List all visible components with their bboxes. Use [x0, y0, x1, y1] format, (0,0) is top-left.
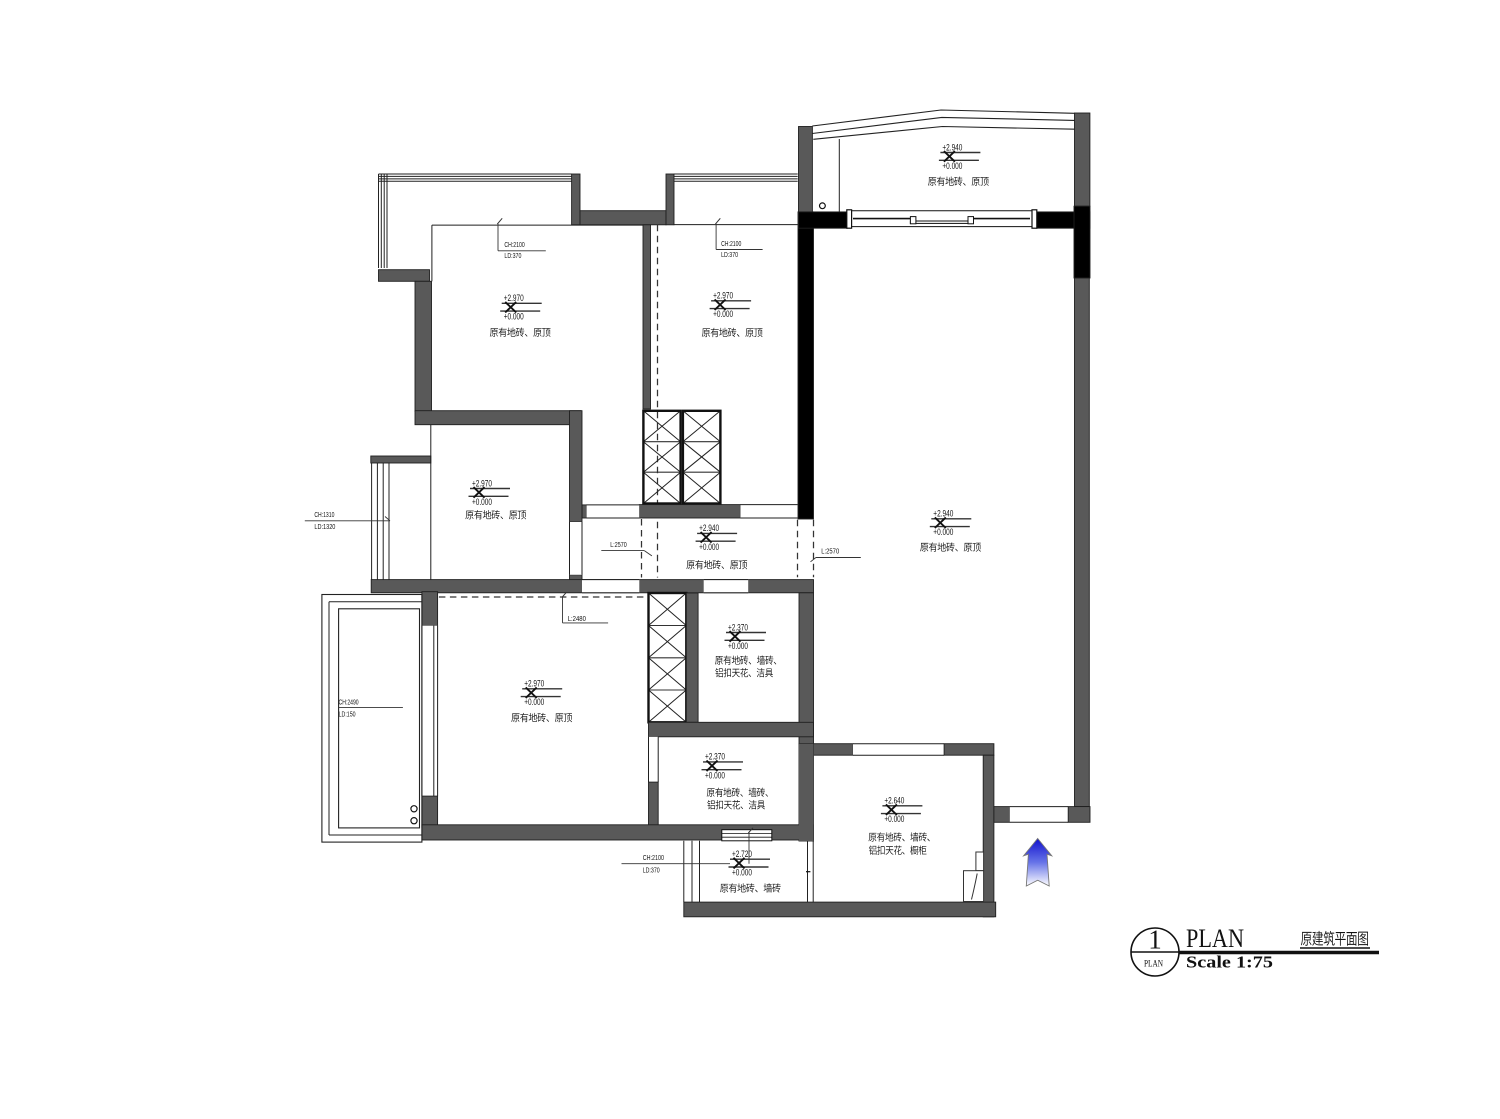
svg-text:CH:2490: CH:2490: [339, 698, 359, 707]
svg-text:L:2570: L:2570: [821, 546, 839, 555]
svg-text:L:2570: L:2570: [610, 540, 626, 549]
svg-text:+2.970: +2.970: [713, 291, 733, 301]
svg-text:+2.370: +2.370: [705, 752, 725, 762]
svg-text:+0.000: +0.000: [942, 161, 962, 171]
svg-text:+2.970: +2.970: [504, 293, 524, 303]
svg-text:+2.970: +2.970: [524, 679, 544, 689]
svg-text:+2.940: +2.940: [699, 523, 719, 533]
svg-text:+2.370: +2.370: [728, 622, 748, 632]
svg-text:Scale 1:75: Scale 1:75: [1186, 953, 1273, 972]
svg-text:+0.000: +0.000: [884, 814, 904, 824]
svg-text:+2.940: +2.940: [933, 509, 953, 519]
svg-text:+0.000: +0.000: [713, 309, 733, 319]
svg-text:CH:2100: CH:2100: [504, 240, 524, 249]
svg-text:+0.000: +0.000: [504, 312, 524, 322]
svg-text:L:2480: L:2480: [568, 614, 586, 623]
svg-text:+0.000: +0.000: [524, 697, 544, 707]
svg-text:LD:1320: LD:1320: [314, 522, 335, 531]
svg-text:1: 1: [1148, 925, 1162, 955]
svg-text:+0.000: +0.000: [732, 868, 752, 878]
svg-text:+0.000: +0.000: [472, 497, 492, 507]
svg-text:LD:370: LD:370: [721, 250, 738, 259]
svg-text:CH:2100: CH:2100: [643, 853, 664, 862]
svg-text:LD:370: LD:370: [643, 866, 660, 875]
svg-text:+0.000: +0.000: [728, 641, 748, 651]
svg-text:+2.640: +2.640: [884, 796, 904, 806]
svg-text:PLAN: PLAN: [1144, 960, 1163, 970]
svg-text:PLAN: PLAN: [1186, 924, 1244, 953]
svg-text:CH:1310: CH:1310: [314, 510, 334, 519]
svg-text:+0.000: +0.000: [705, 770, 725, 780]
svg-text:+0.000: +0.000: [933, 527, 953, 537]
svg-text:LD:150: LD:150: [339, 710, 356, 719]
svg-text:CH:2100: CH:2100: [721, 239, 741, 248]
svg-text:+0.000: +0.000: [699, 542, 719, 552]
svg-text:+2.940: +2.940: [942, 142, 962, 152]
svg-text:+2.970: +2.970: [472, 478, 492, 488]
svg-text:LD:370: LD:370: [504, 251, 521, 260]
